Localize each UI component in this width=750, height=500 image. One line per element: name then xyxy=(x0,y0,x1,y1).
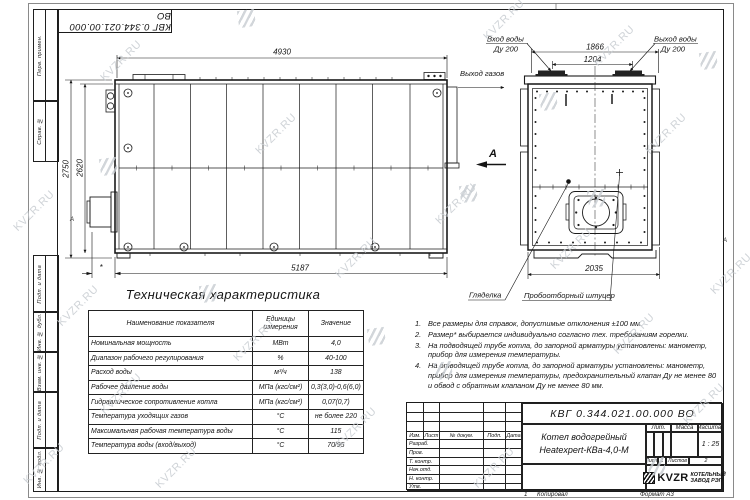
bolt-dots xyxy=(535,91,646,244)
drawing-sheet: Перв. примен. Справ. № Подп. и дата Инв.… xyxy=(0,0,750,500)
dim-5187: 5187 xyxy=(291,264,309,273)
side-view xyxy=(87,73,459,259)
dim-2035: 2035 xyxy=(584,264,603,273)
side-view-dimensions xyxy=(65,55,447,278)
boiler-drawing-linework: 4930 2750 2620 5187 * xyxy=(0,0,750,500)
label-gas-outlet: Выход газов xyxy=(460,69,504,78)
view-a-letter: А xyxy=(488,148,497,160)
end-view xyxy=(521,66,660,258)
label-sampler: Пробоотборный штуцер xyxy=(524,291,615,300)
label-water-outlet-dn: Ду 200 xyxy=(660,45,686,54)
dim-burner-asterisk: * xyxy=(99,263,103,272)
label-water-inlet: Вход воды xyxy=(487,35,524,44)
end-view-dimensions xyxy=(458,44,698,301)
dim-1866: 1866 xyxy=(586,43,604,52)
label-peephole: Гляделка xyxy=(469,291,501,300)
dim-2750: 2750 xyxy=(62,160,71,179)
label-water-outlet: Выход воды xyxy=(654,35,697,44)
dim-4930: 4930 xyxy=(273,48,291,57)
dim-1204: 1204 xyxy=(584,55,602,64)
label-water-inlet-dn: Ду 200 xyxy=(493,45,519,54)
dim-2620: 2620 xyxy=(76,159,85,178)
